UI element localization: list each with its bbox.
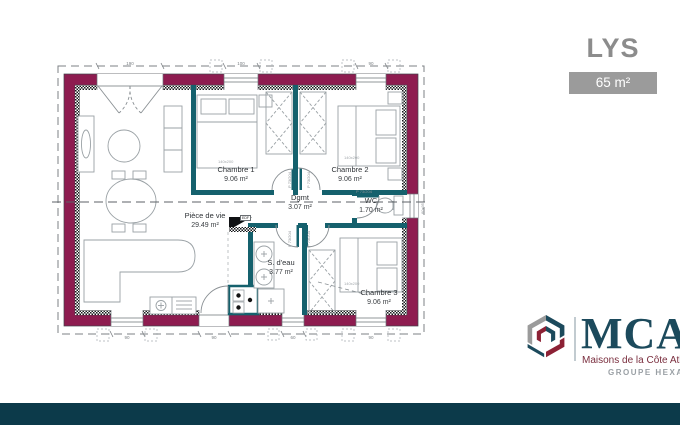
mca-wordmark: MCA	[581, 308, 680, 359]
room-name: Chambre 2	[331, 165, 368, 174]
door-ref-label: P 73/204	[306, 231, 311, 247]
room-label-degagement: Dgmt 3.07 m²	[272, 193, 328, 212]
dim-top: 90	[353, 61, 389, 66]
room-label-wc: WC 1.70 m²	[356, 196, 386, 215]
cube-shapes	[528, 315, 565, 357]
footer-bar	[0, 403, 680, 425]
dim-bottom: 90	[353, 335, 389, 340]
dim-bottom: 90	[196, 335, 232, 340]
room-label-chambre3: Chambre 3 9.06 m²	[350, 288, 408, 307]
room-area: 3.07 m²	[272, 203, 328, 212]
wc-window-size-label: 60x95	[420, 203, 425, 214]
bed-size-label: 140x200	[344, 155, 359, 160]
sideboard	[78, 116, 94, 172]
edf-label: EDF	[240, 215, 251, 221]
room-name: Dgmt	[291, 193, 309, 202]
room-name: S. d'eau	[267, 258, 294, 267]
room-label-piece-de-vie: Pièce de vie 29.49 m²	[163, 211, 247, 230]
shelf-unit	[164, 106, 182, 172]
room-name: Chambre 3	[360, 288, 397, 297]
shower	[258, 289, 284, 313]
door-ref-label: P 73/204	[306, 172, 311, 188]
room-name: Pièce de vie	[185, 211, 226, 220]
group-hexaom-label: GROUPE HEXA	[608, 368, 680, 377]
mca-tagline: Maisons de la Côte Atlantique	[582, 355, 680, 366]
dim-top: 100	[223, 61, 259, 66]
floor-plan-page: Pièce de vie 29.49 m² Chambre 1 9.06 m² …	[0, 0, 680, 425]
room-area: 9.06 m²	[312, 175, 388, 184]
bed-size-label: 140x200	[218, 159, 233, 164]
room-label-chambre2: Chambre 2 9.06 m²	[312, 165, 388, 184]
room-name: WC	[365, 196, 378, 205]
surface-badge: 65 m²	[569, 72, 657, 94]
door-ref-label: P 73/204	[356, 189, 372, 194]
room-area: 9.06 m²	[198, 175, 274, 184]
logo-divider	[574, 317, 576, 361]
room-area: 1.70 m²	[356, 206, 386, 215]
door-ref-label: P 73/204	[287, 231, 292, 247]
dim-bottom: 90	[109, 335, 145, 340]
door-ref-label: P 73/204	[287, 172, 292, 188]
room-label-chambre1: Chambre 1 9.06 m²	[198, 165, 274, 184]
room-area: 29.49 m²	[163, 221, 247, 230]
room-name: Chambre 1	[217, 165, 254, 174]
mca-cube-logo	[523, 313, 569, 362]
dim-top: 190	[112, 61, 148, 66]
room-area: 9.06 m²	[350, 298, 408, 307]
bed-size-label: 140x200	[344, 281, 359, 286]
dim-bottom: 60	[275, 335, 311, 340]
laundry-closet	[229, 286, 258, 314]
page-title: LYS	[563, 33, 663, 64]
room-area: 3.77 m²	[256, 268, 306, 277]
room-label-salle-eau: S. d'eau 3.77 m²	[256, 258, 306, 277]
